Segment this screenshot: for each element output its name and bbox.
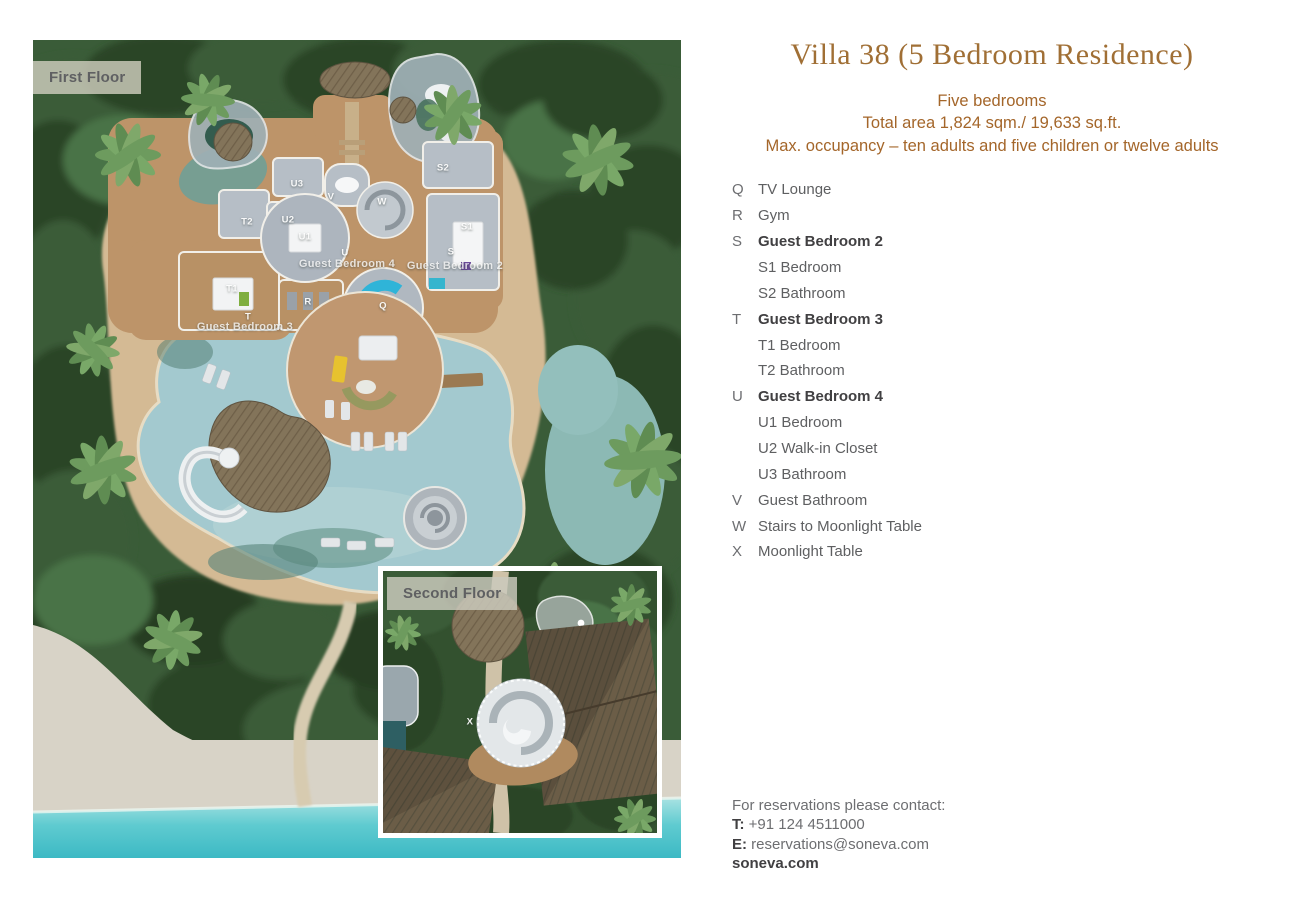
- legend-label: S2 Bathroom: [758, 285, 846, 302]
- legend-row-s1: S1 Bedroom: [732, 255, 922, 281]
- legend-row-r: RGym: [732, 203, 922, 229]
- legend-label: Stairs to Moonlight Table: [758, 518, 922, 535]
- first-floor-plan-image: First Floor Second Floor U3VU2U1UGuest B…: [33, 40, 681, 858]
- legend-label: U3 Bathroom: [758, 466, 846, 483]
- legend-label: S1 Bedroom: [758, 259, 841, 276]
- phone-number: +91 124 4511000: [749, 816, 865, 833]
- contact-heading: For reservations please contact:: [732, 796, 945, 815]
- legend-label: Guest Bathroom: [758, 492, 867, 509]
- legend-label: U2 Walk-in Closet: [758, 440, 877, 457]
- legend-label: Guest Bedroom 3: [758, 311, 883, 328]
- legend-row-w: WStairs to Moonlight Table: [732, 513, 922, 539]
- legend-key: V: [732, 492, 758, 509]
- legend-list: QTV LoungeRGymSGuest Bedroom 2S1 Bedroom…: [732, 177, 922, 565]
- villa-summary: Five bedrooms Total area 1,824 sqm./ 19,…: [702, 90, 1282, 157]
- legend-key: S: [732, 233, 758, 250]
- legend-row-u: UGuest Bedroom 4: [732, 384, 922, 410]
- legend-label: Moonlight Table: [758, 543, 863, 560]
- legend-key: W: [732, 518, 758, 535]
- email-address: reservations@soneva.com: [751, 836, 929, 853]
- legend-row-t: TGuest Bedroom 3: [732, 306, 922, 332]
- second-floor-badge: Second Floor: [387, 577, 517, 610]
- legend-key: Q: [732, 181, 758, 198]
- first-floor-badge: First Floor: [33, 61, 141, 94]
- phone-label: T:: [732, 816, 745, 833]
- legend-row-q: QTV Lounge: [732, 177, 922, 203]
- legend-row-u2: U2 Walk-in Closet: [732, 436, 922, 462]
- legend-label: Guest Bedroom 4: [758, 388, 883, 405]
- legend-key: U: [732, 388, 758, 405]
- legend-row-t2: T2 Bathroom: [732, 358, 922, 384]
- contact-phone-row: T: +91 124 4511000: [732, 815, 945, 834]
- contact-block: For reservations please contact: T: +91 …: [732, 796, 945, 874]
- legend-key: X: [732, 543, 758, 560]
- legend-label: TV Lounge: [758, 181, 831, 198]
- website: soneva.com: [732, 854, 945, 873]
- email-label: E:: [732, 836, 747, 853]
- summary-area: Total area 1,824 sqm./ 19,633 sq.ft.: [702, 112, 1282, 134]
- legend-row-u3: U3 Bathroom: [732, 461, 922, 487]
- legend-label: T2 Bathroom: [758, 362, 845, 379]
- legend-row-u1: U1 Bedroom: [732, 410, 922, 436]
- legend-label: Gym: [758, 207, 790, 224]
- legend-label: Guest Bedroom 2: [758, 233, 883, 250]
- legend-row-v: VGuest Bathroom: [732, 487, 922, 513]
- second-floor-render: [383, 571, 657, 833]
- legend-row-s: SGuest Bedroom 2: [732, 229, 922, 255]
- legend-label: U1 Bedroom: [758, 414, 842, 431]
- legend-row-t1: T1 Bedroom: [732, 332, 922, 358]
- legend-key: R: [732, 207, 758, 224]
- brochure-page: First Floor Second Floor U3VU2U1UGuest B…: [0, 0, 1292, 901]
- summary-occupancy: Max. occupancy – ten adults and five chi…: [702, 135, 1282, 157]
- summary-bedrooms: Five bedrooms: [702, 90, 1282, 112]
- legend-row-s2: S2 Bathroom: [732, 280, 922, 306]
- legend-label: T1 Bedroom: [758, 337, 841, 354]
- legend-row-x: XMoonlight Table: [732, 539, 922, 565]
- contact-email-row: E: reservations@soneva.com: [732, 835, 945, 854]
- page-title: Villa 38 (5 Bedroom Residence): [712, 38, 1272, 72]
- legend-key: T: [732, 311, 758, 328]
